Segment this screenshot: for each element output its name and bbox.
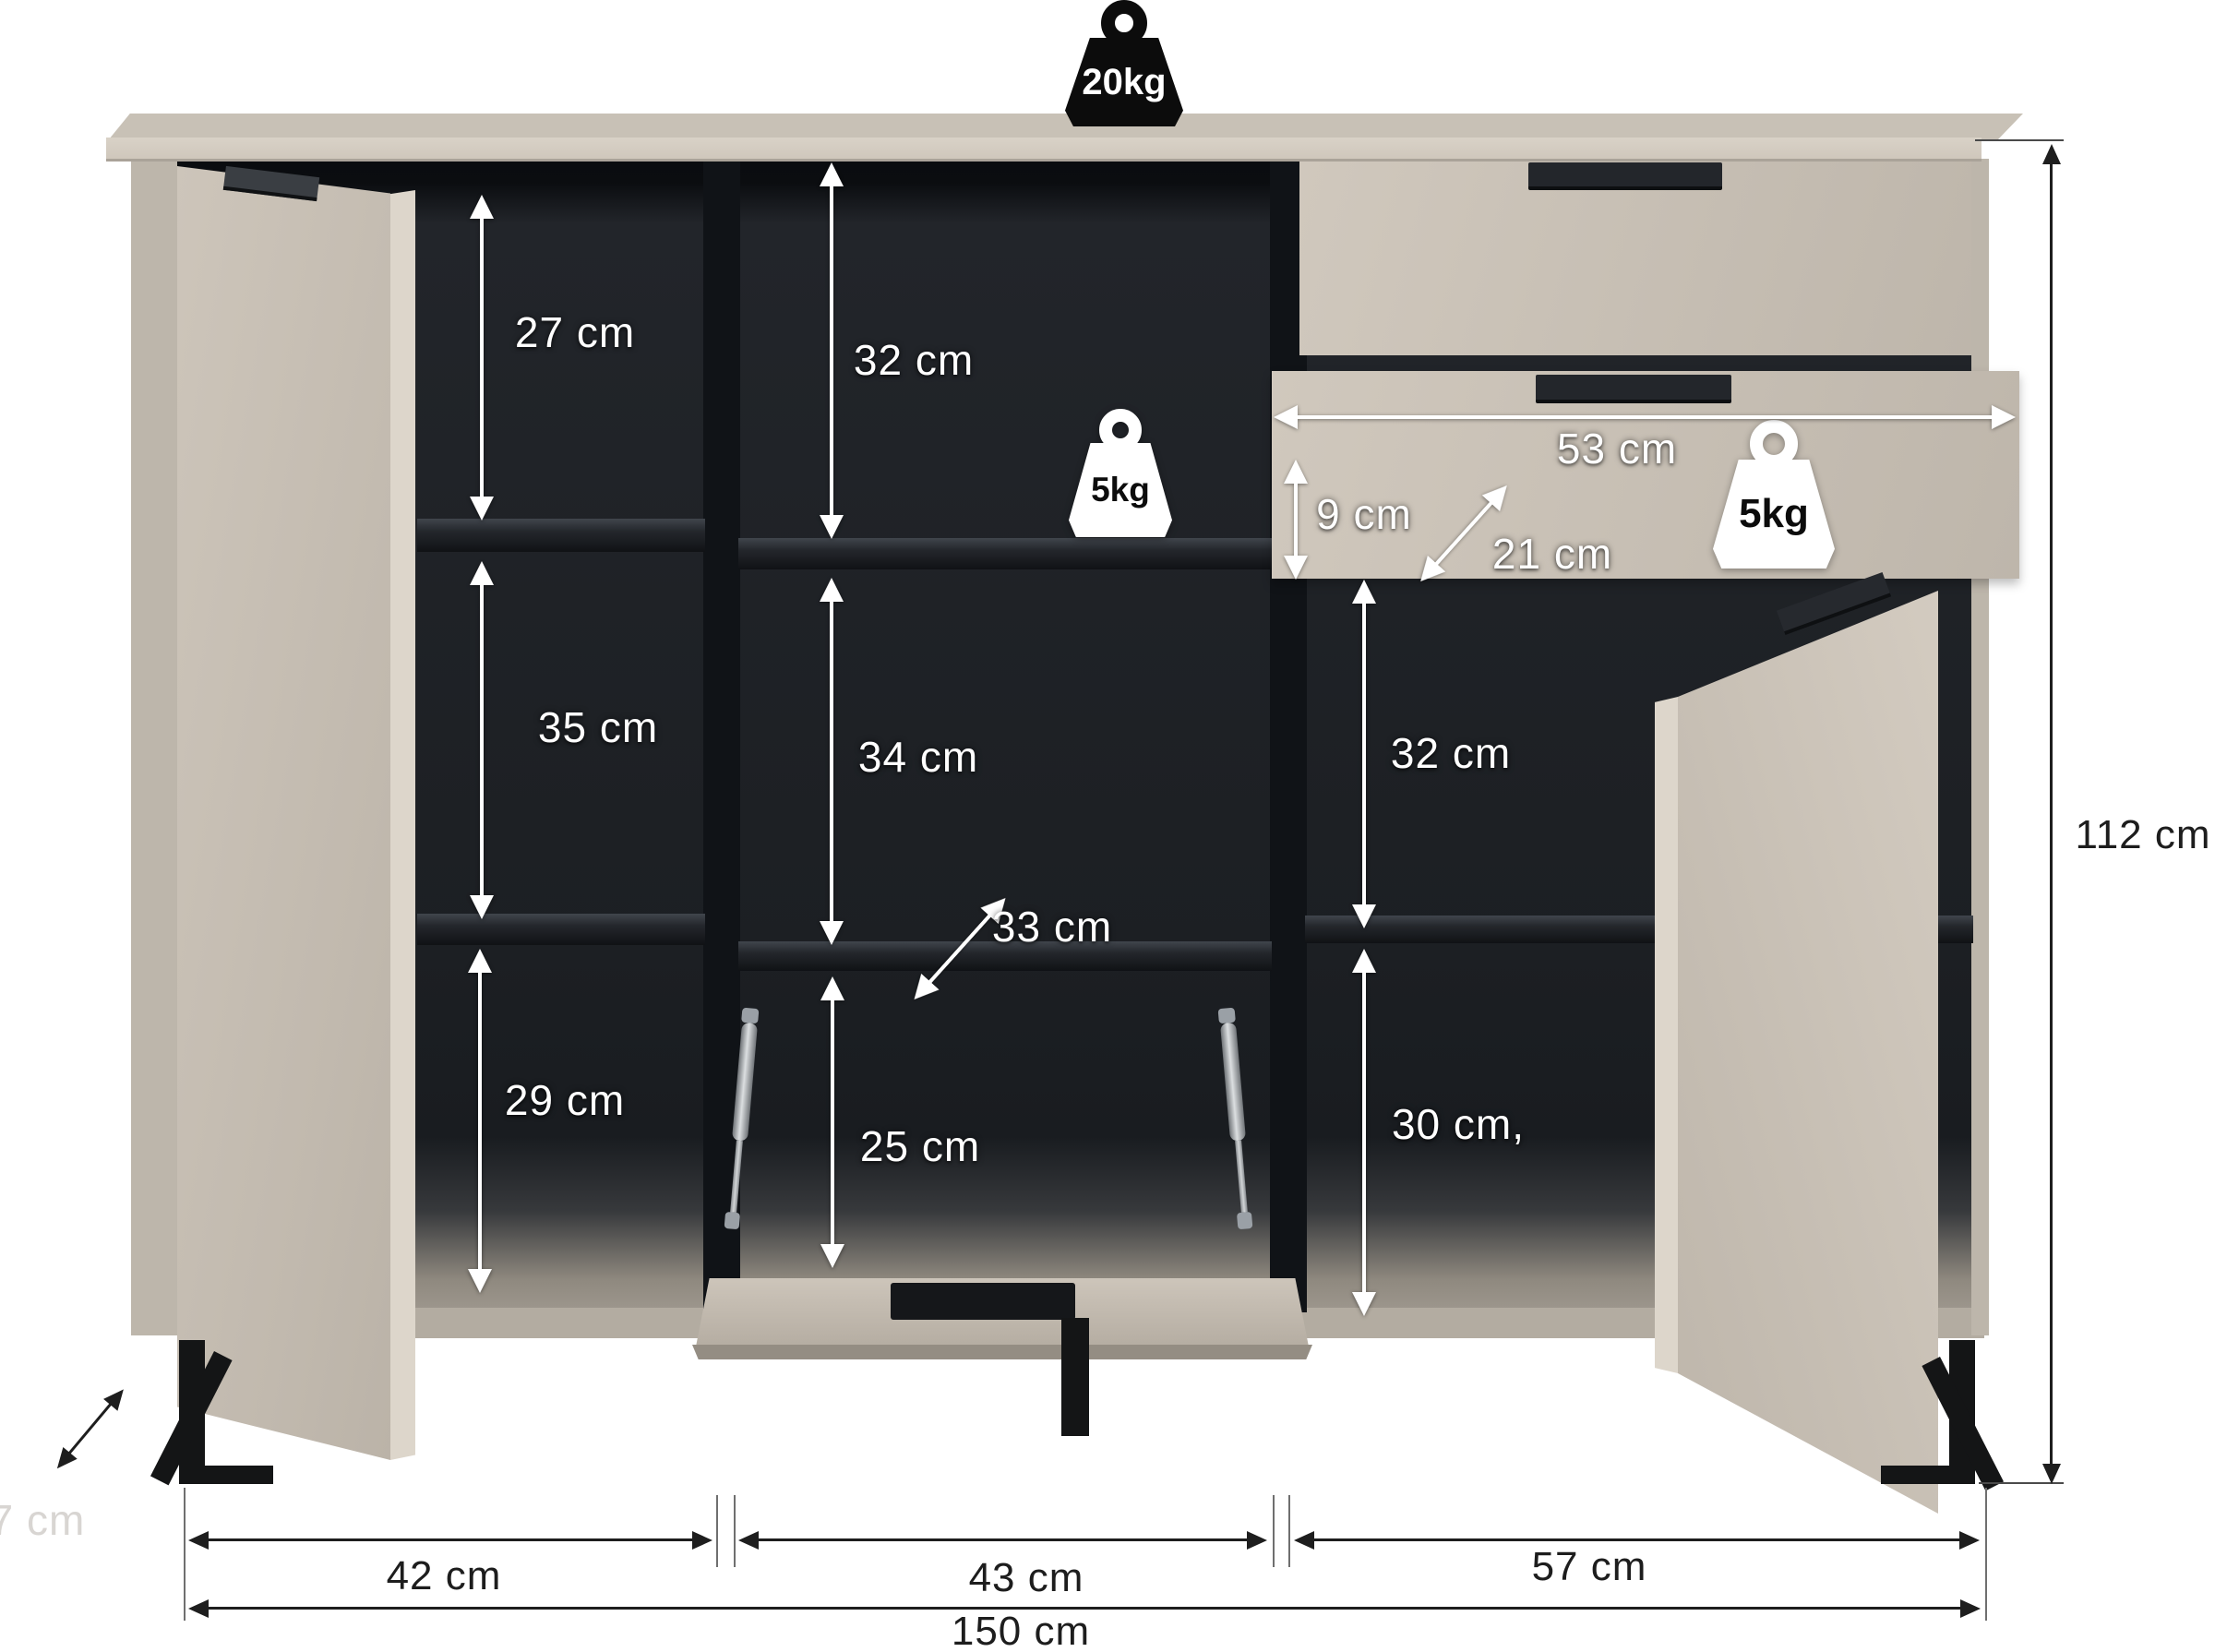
dim-arrow-overall-height <box>2050 162 2053 1466</box>
dim-label-flap-opening: 25 cm <box>860 1121 980 1171</box>
dim-arrow-drawer-width <box>1296 415 1993 419</box>
dim-arrow-depth <box>67 1402 113 1454</box>
right-side-panel <box>1971 159 1989 1335</box>
ext-line-mid-2a <box>1273 1495 1275 1567</box>
dim-arrow-flap-opening <box>831 999 834 1246</box>
shelf-load-icon: 5kg <box>1069 409 1172 537</box>
ext-line-right <box>1985 1488 1987 1621</box>
ext-line-height-top <box>1975 139 2064 141</box>
left-shelf-1 <box>417 519 705 552</box>
dim-label-overall-width: 150 cm <box>952 1609 1090 1652</box>
dim-arrow-left-bottom <box>478 971 482 1271</box>
drawer-2-handle[interactable] <box>1536 375 1731 403</box>
dim-arrow-middle-top <box>830 185 833 517</box>
flap-door-handle[interactable] <box>891 1283 1075 1320</box>
ext-line-mid-2b <box>1288 1495 1290 1567</box>
dim-label-section-right: 57 cm <box>1532 1544 1647 1590</box>
drawer-1-handle[interactable] <box>1528 162 1722 190</box>
ext-line-mid-1b <box>734 1495 736 1567</box>
shelf-load-label: 5kg <box>1091 471 1150 509</box>
right-leg-foot <box>1881 1466 1975 1484</box>
left-door-open[interactable] <box>177 166 390 1460</box>
dim-arrow-section-right <box>1312 1538 1961 1541</box>
dim-arrow-right-top <box>1362 602 1366 906</box>
dim-label-left-middle: 35 cm <box>538 702 658 752</box>
dim-arrow-left-middle <box>480 583 484 897</box>
middle-shelf-1 <box>738 538 1272 569</box>
dim-arrow-drawer-height <box>1294 482 1298 557</box>
dim-label-middle-mid: 34 cm <box>858 732 978 782</box>
right-door-open[interactable] <box>1678 591 1938 1514</box>
dim-label-section-left: 42 cm <box>387 1553 502 1599</box>
left-shelf-2 <box>417 914 705 945</box>
dim-arrow-middle-mid <box>830 600 833 923</box>
dim-label-overall-height: 112 cm <box>2075 812 2210 858</box>
dim-label-right-bottom: 30 cm, <box>1392 1099 1525 1149</box>
left-side-panel <box>131 159 177 1335</box>
flap-door-edge <box>692 1345 1312 1359</box>
furniture-dimension-diagram: 20kg 5kg 5kg 27 cm 35 cm 29 cm 32 cm 34 … <box>0 0 2215 1652</box>
dim-arrow-right-bottom <box>1362 971 1366 1294</box>
dim-label-drawer-width: 53 cm <box>1557 424 1677 473</box>
max-load-top-label: 20kg <box>1082 62 1166 103</box>
left-door-edge <box>390 190 415 1460</box>
dim-label-drawer-depth: 21 cm <box>1492 529 1612 579</box>
ext-line-left <box>184 1488 186 1621</box>
dim-label-section-middle: 43 cm <box>969 1555 1084 1601</box>
drawer-load-label: 5kg <box>1739 491 1809 537</box>
max-load-top-icon: 20kg <box>1065 0 1183 126</box>
drawer-load-icon: 5kg <box>1713 420 1835 569</box>
top-panel-front-edge <box>106 138 1982 162</box>
right-door-edge <box>1655 697 1678 1373</box>
dim-label-middle-top: 32 cm <box>854 335 974 385</box>
left-leg-foot <box>179 1466 273 1484</box>
dim-label-drawer-height: 9 cm <box>1316 489 1412 539</box>
dim-label-left-top: 27 cm <box>515 307 635 357</box>
dim-arrow-section-middle <box>757 1538 1249 1541</box>
dim-arrow-section-left <box>207 1538 694 1541</box>
dim-label-depth: 37 cm <box>0 1495 85 1545</box>
dim-label-left-bottom: 29 cm <box>505 1075 625 1125</box>
ext-line-mid-1a <box>716 1495 718 1567</box>
dim-label-shelf-depth: 33 cm <box>992 902 1112 952</box>
center-leg <box>1061 1318 1089 1436</box>
dim-arrow-left-top <box>480 217 484 498</box>
dim-label-right-top: 32 cm <box>1391 728 1511 778</box>
